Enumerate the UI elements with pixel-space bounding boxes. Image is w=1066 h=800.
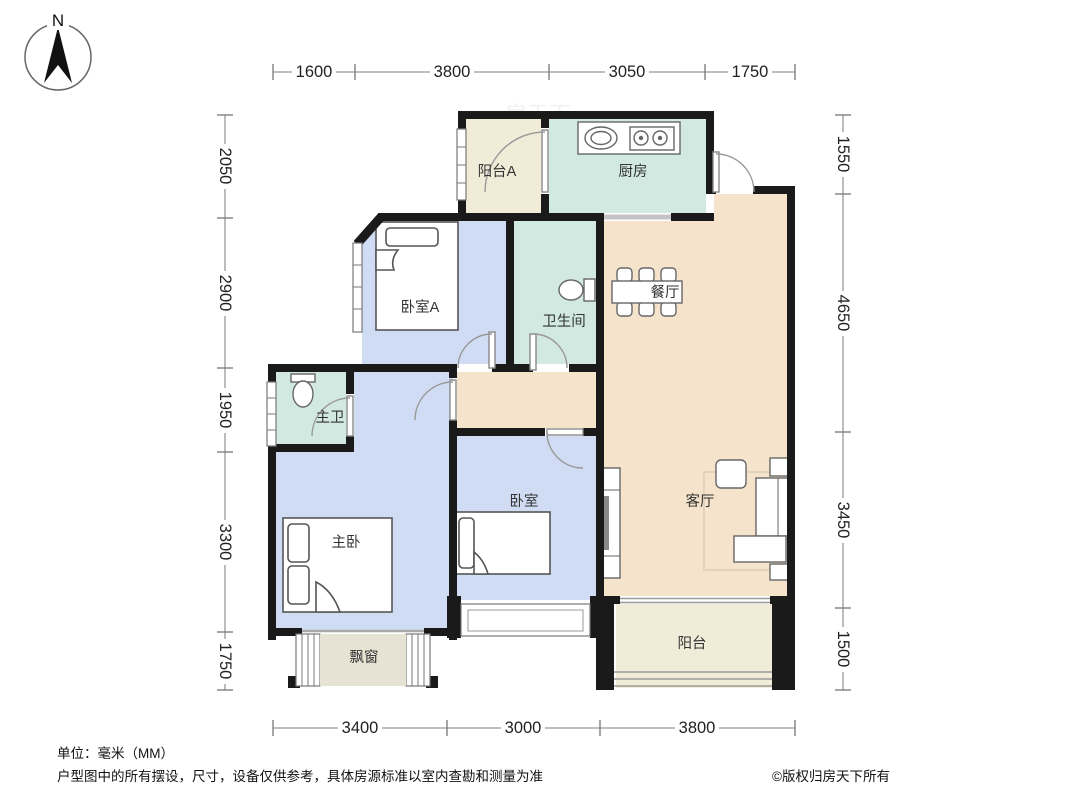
dim-left-1: 2050 [216,148,234,185]
label-balcony-a: 阳台A [478,163,517,180]
label-dining: 餐厅 [651,284,680,301]
compass-north-label: N [52,11,64,30]
bay-window-bedroom [461,604,590,636]
footer: 单位：毫米（MM） 户型图中的所有摆设，尺寸，设备仅供参考，具体房源标准以室内查… [57,745,890,784]
label-bathroom: 卫生间 [542,313,586,330]
dim-top-4: 1750 [732,63,769,81]
dim-bottom-1: 3400 [342,719,379,737]
footer-disclaimer: 户型图中的所有摆设，尺寸，设备仅供参考，具体房源标准以室内查勘和测量为准 [57,768,543,784]
dim-right-2: 4650 [834,295,852,332]
dimension-bottom: 3400 3000 3800 [273,719,795,737]
chaise [734,536,786,562]
label-bay-window: 飘窗 [350,648,379,666]
label-master-bedroom: 主卧 [332,534,361,551]
dim-top-2: 3800 [434,63,471,81]
sofa [756,478,790,536]
dim-top-1: 1600 [296,63,333,81]
entry-door [713,152,754,192]
bed-bedroom [455,512,550,574]
window-bedroom-a [353,243,362,332]
footer-copyright: ©版权归房天下所有 [772,768,890,784]
window-master-bathroom [267,382,276,446]
kitchen-counter [578,122,680,154]
master-bathroom-toilet [291,374,315,407]
armchair [716,460,746,488]
bathroom-toilet [559,279,595,301]
label-bedroom: 卧室 [510,493,539,510]
label-kitchen: 厨房 [619,163,648,180]
dim-left-4: 3300 [216,524,234,561]
label-bedroom-a: 卧室A [401,299,440,316]
floorplan-page: 房天下 房天下 [0,0,1066,800]
label-balcony: 阳台 [678,635,707,652]
dimension-top: 1600 3800 3050 1750 [273,63,795,81]
dim-top-3: 3050 [609,63,646,81]
dimension-left: 2050 2900 1950 3300 1750 [216,115,234,690]
compass: N [25,8,91,90]
tv [604,496,609,550]
window-balcony-a [457,129,466,200]
bed-master [283,518,392,612]
dim-right-1: 1550 [834,136,852,173]
floorplan-canvas: 房天下 房天下 [0,0,1066,800]
dim-right-3: 3450 [834,502,852,539]
dim-left-2: 2900 [216,275,234,312]
dim-left-3: 1950 [216,392,234,429]
label-living: 客厅 [686,493,715,510]
dim-bottom-3: 3800 [679,719,716,737]
dim-left-5: 1750 [216,643,234,680]
dimension-right: 1550 4650 3450 1500 [834,115,852,690]
room-master-bathroom [276,372,346,444]
dim-right-4: 1500 [834,631,852,668]
label-master-bathroom: 主卫 [316,409,345,426]
dim-bottom-2: 3000 [505,719,542,737]
footer-unit: 单位：毫米（MM） [57,745,174,761]
